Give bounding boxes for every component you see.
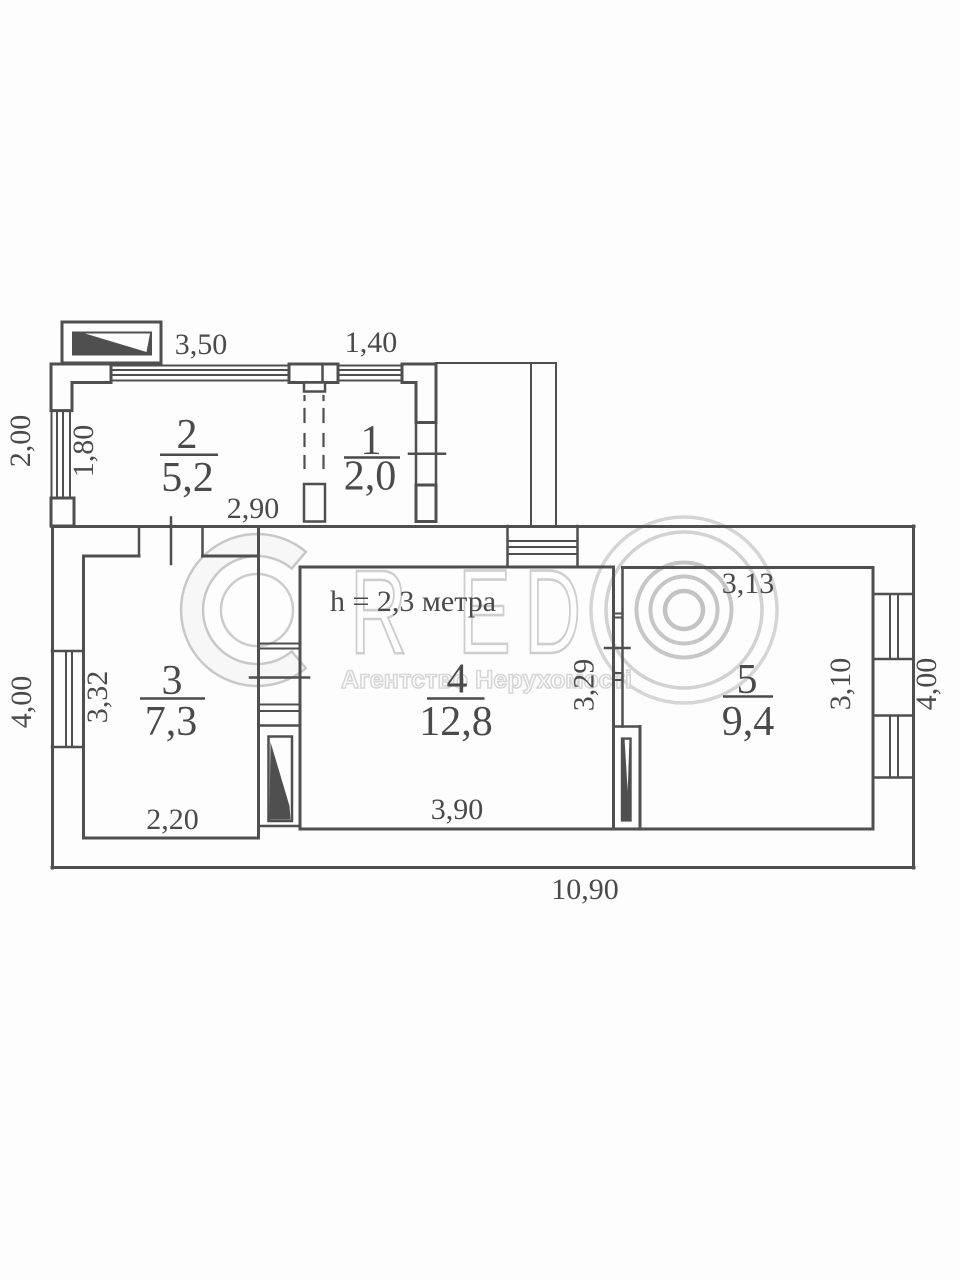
- svg-text:3,13: 3,13: [722, 567, 775, 600]
- svg-text:9,4: 9,4: [722, 699, 775, 745]
- svg-text:h = 2,3 метра: h = 2,3 метра: [330, 585, 496, 618]
- svg-text:3,32: 3,32: [81, 671, 114, 724]
- svg-text:2: 2: [177, 412, 198, 458]
- svg-text:3,90: 3,90: [431, 793, 484, 826]
- svg-text:4,00: 4,00: [910, 658, 943, 711]
- svg-text:4,00: 4,00: [5, 676, 38, 729]
- svg-text:7,3: 7,3: [145, 699, 198, 745]
- svg-text:2,00: 2,00: [4, 415, 37, 468]
- svg-text:10,90: 10,90: [551, 873, 619, 906]
- svg-text:3,29: 3,29: [568, 659, 601, 712]
- svg-text:3,10: 3,10: [824, 658, 857, 711]
- svg-text:2,0: 2,0: [344, 454, 397, 500]
- svg-text:4: 4: [447, 657, 468, 703]
- svg-text:1,40: 1,40: [345, 326, 398, 359]
- svg-text:12,8: 12,8: [419, 699, 493, 745]
- svg-text:2,90: 2,90: [227, 492, 280, 525]
- svg-text:1,80: 1,80: [67, 425, 100, 478]
- svg-text:3: 3: [162, 658, 183, 704]
- svg-text:5,2: 5,2: [161, 455, 214, 501]
- svg-text:3,50: 3,50: [175, 328, 228, 361]
- svg-text:2,20: 2,20: [146, 803, 199, 836]
